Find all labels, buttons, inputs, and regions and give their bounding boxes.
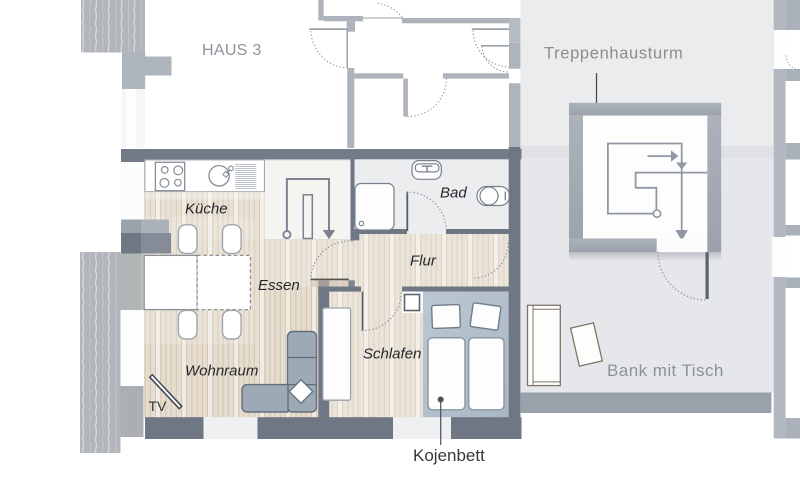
svg-text:Bank mit Tisch: Bank mit Tisch <box>607 361 724 380</box>
svg-text:Schlafen: Schlafen <box>363 346 421 363</box>
svg-text:TV: TV <box>149 398 168 414</box>
svg-text:HAUS 3: HAUS 3 <box>202 42 262 59</box>
svg-text:Bad: Bad <box>440 185 467 202</box>
svg-text:Kojenbett: Kojenbett <box>413 446 485 465</box>
svg-text:Treppenhausturm: Treppenhausturm <box>544 45 683 63</box>
svg-text:Küche: Küche <box>185 201 228 218</box>
svg-text:Wohnraum: Wohnraum <box>185 363 258 380</box>
svg-text:Essen: Essen <box>258 277 300 294</box>
svg-text:Flur: Flur <box>410 253 437 270</box>
